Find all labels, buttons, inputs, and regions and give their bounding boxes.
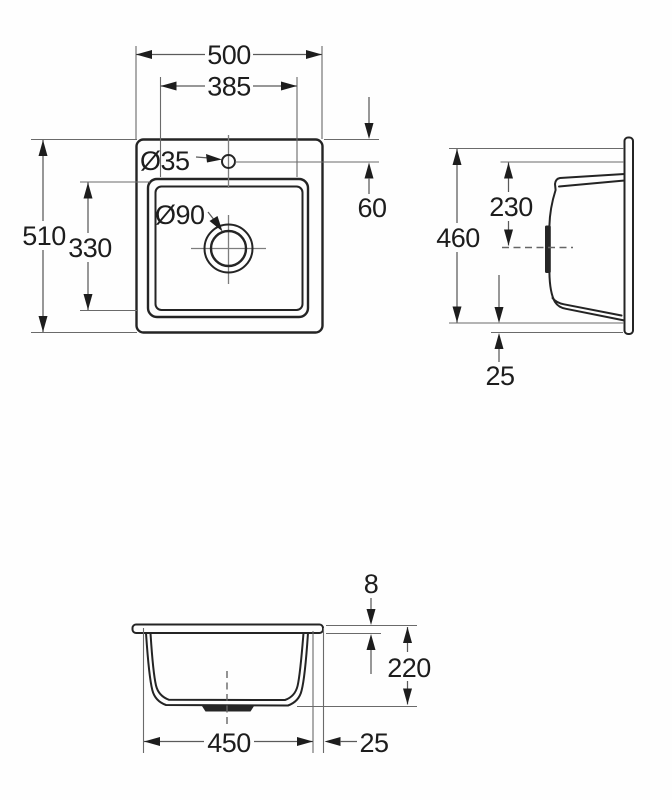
dim-label-8: 8 <box>364 569 379 599</box>
callout-drain: Ø90 <box>155 200 223 232</box>
sink-dimension-drawing: 500 385 510 <box>0 0 672 800</box>
plan-view: 500 385 510 <box>22 40 387 333</box>
front-drain-boss <box>201 705 255 712</box>
dim-label-460: 460 <box>436 223 480 253</box>
technical-drawing-page: 500 385 510 <box>0 0 672 800</box>
dim-label-60: 60 <box>357 193 386 223</box>
dim-label-25-side: 25 <box>485 361 514 391</box>
dim-label-220: 220 <box>387 653 431 683</box>
side-rim-plate <box>625 138 634 335</box>
callout-tap-hole: Ø35 <box>140 146 222 176</box>
dim-label-tap-dia: Ø35 <box>140 146 190 176</box>
side-view: 460 230 25 <box>435 138 633 392</box>
dim-label-230: 230 <box>489 192 533 222</box>
front-bowl-inner <box>151 633 304 700</box>
dim-60: 60 <box>235 97 387 223</box>
dim-label-drain-dia: Ø90 <box>155 200 205 230</box>
dim-460: 460 <box>435 149 624 324</box>
dim-label-385: 385 <box>207 72 251 102</box>
dim-25-side: 25 <box>485 275 623 391</box>
dim-label-330: 330 <box>68 233 112 263</box>
dim-220: 220 <box>297 627 432 707</box>
dim-label-450: 450 <box>207 728 251 758</box>
dim-label-510: 510 <box>22 221 66 251</box>
front-rim <box>133 625 324 634</box>
dim-label-25-front: 25 <box>359 728 388 758</box>
dim-450: 450 <box>144 628 314 758</box>
dim-label-500: 500 <box>207 40 251 70</box>
side-mounting-tab <box>545 226 551 274</box>
side-bowl-inner-line <box>559 181 625 187</box>
dim-25-front: 25 <box>324 628 389 758</box>
front-view: 8 220 450 25 <box>133 569 433 758</box>
